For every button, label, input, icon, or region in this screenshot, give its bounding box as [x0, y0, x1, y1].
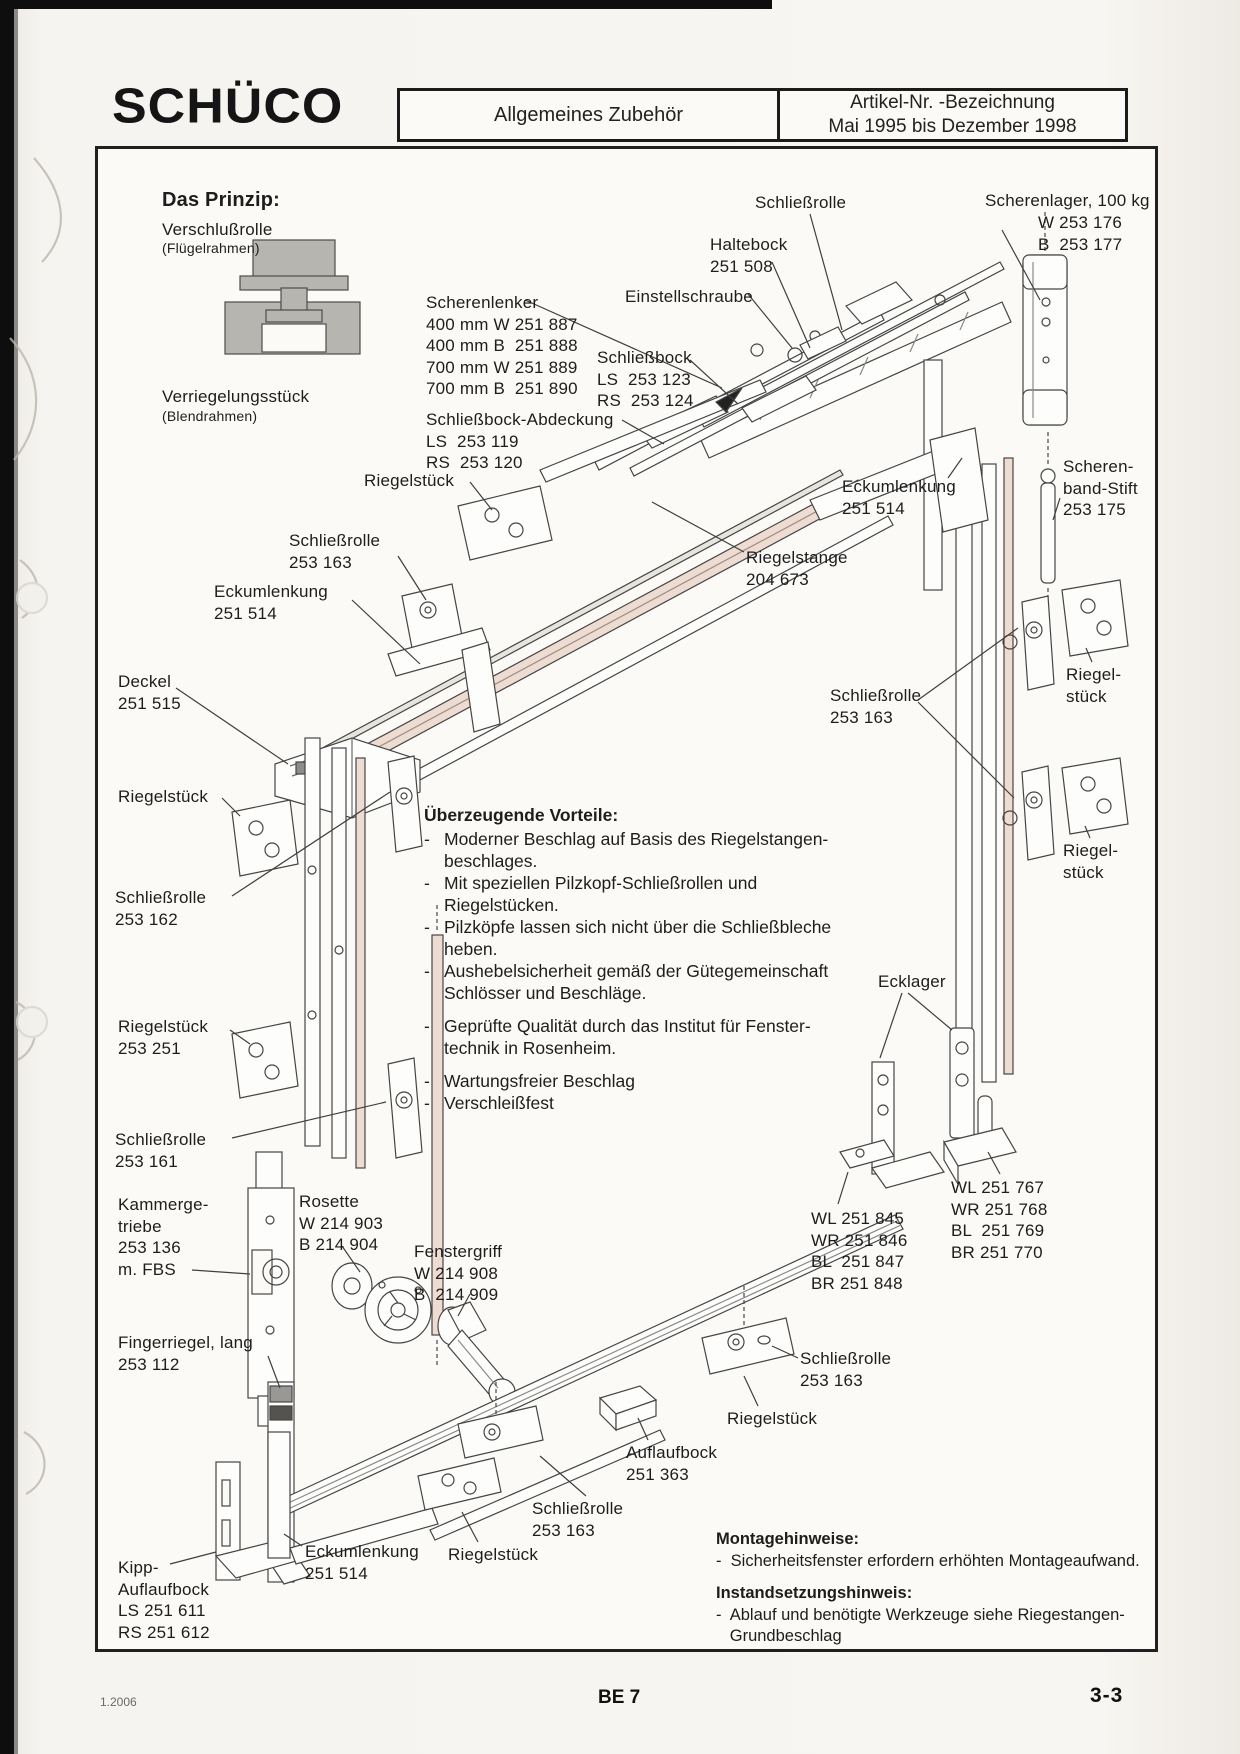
- label-ecklager-nums-right: WL 251 767 WR 251 768 BL 251 769 BR 251 …: [951, 1177, 1048, 1263]
- label-riegelstueck-b2: Riegelstück: [448, 1544, 538, 1566]
- label-schliessrolle-161: Schließrolle 253 161: [115, 1129, 206, 1172]
- advantages-lines: -Moderner Beschlag auf Basis des Riegels…: [424, 828, 904, 1114]
- label-deckel: Deckel 251 515: [118, 671, 181, 714]
- advantage-line: -Geprüfte Qualität durch das Institut fü…: [424, 1015, 904, 1037]
- label-schliessrolle-top: Schließrolle: [755, 192, 846, 214]
- label-riegelstueck-253-251: Riegelstück 253 251: [118, 1016, 208, 1059]
- label-schliessbock: Schließbock LS 253 123 RS 253 124: [597, 347, 694, 412]
- label-schliessrolle-163-left: Schließrolle 253 163: [289, 530, 380, 573]
- das-prinzip-title: Das Prinzip:: [162, 188, 280, 213]
- label-eckumlenkung-left: Eckumlenkung 251 514: [214, 581, 328, 624]
- label-schliessrolle-163-b1: Schließrolle 253 163: [800, 1348, 891, 1391]
- advantages-block: Überzeugende Vorteile: -Moderner Beschla…: [424, 804, 904, 1114]
- advantage-line: -Pilzköpfe lassen sich nicht über die Sc…: [424, 916, 904, 938]
- footer-page-code: BE 7: [598, 1687, 640, 1709]
- footer-page-number: 3-3: [1090, 1684, 1123, 1708]
- label-schliessrolle-162: Schließrolle 253 162: [115, 887, 206, 930]
- fenstergriff-drawing: [438, 1302, 515, 1405]
- advantage-line: [424, 1059, 904, 1070]
- label-schliessrolle-163-b2: Schließrolle 253 163: [532, 1498, 623, 1541]
- label-riegelstueck-right-1: Riegel- stück: [1066, 664, 1121, 707]
- label-scherenlager: Scherenlager, 100 kg: [985, 190, 1150, 212]
- advantage-line: technik in Rosenheim.: [424, 1037, 904, 1059]
- advantage-line: -Mit speziellen Pilzkopf-Schließrollen u…: [424, 872, 904, 894]
- note-line: - Ablauf und benötigte Werkzeuge siehe R…: [716, 1605, 1151, 1627]
- advantage-line: -Moderner Beschlag auf Basis des Riegels…: [424, 828, 904, 850]
- label-auflaufbock: Auflaufbock 251 363: [626, 1442, 717, 1485]
- label-riegelstueck-left-1: Riegelstück: [118, 786, 208, 808]
- label-schliessrolle-163-right: Schließrolle 253 163: [830, 685, 921, 728]
- verriegelungsstueck-sub: (Blendrahmen): [162, 408, 257, 426]
- note-title: Instandsetzungshinweis:: [716, 1583, 1151, 1605]
- label-riegelstueck-top: Riegelstück: [364, 470, 454, 492]
- advantage-line: -Aushebelsicherheit gemäß der Gütegemein…: [424, 960, 904, 982]
- label-fingerriegel: Fingerriegel, lang 253 112: [118, 1332, 253, 1375]
- label-riegelstange: Riegelstange 204 673: [746, 547, 848, 590]
- advantage-line: Riegelstücken.: [424, 894, 904, 916]
- label-kammergetriebe: Kammerge- triebe 253 136 m. FBS: [118, 1194, 209, 1280]
- label-scherenlager-nums: W 253 176 B 253 177: [1038, 212, 1122, 255]
- advantage-line: -Wartungsfreier Beschlag: [424, 1070, 904, 1092]
- note-title: Montagehinweise:: [716, 1529, 1151, 1551]
- label-riegelstueck-b1: Riegelstück: [727, 1408, 817, 1430]
- label-haltebock: Haltebock 251 508: [710, 234, 787, 277]
- advantage-line: [424, 1004, 904, 1015]
- label-eckumlenkung-bottom: Eckumlenkung 251 514: [305, 1541, 419, 1584]
- label-scherenlenker: Scherenlenker 400 mm W 251 887 400 mm B …: [426, 292, 578, 400]
- advantage-line: beschlages.: [424, 850, 904, 872]
- label-ecklager-nums-left: WL 251 845 WR 251 846 BL 251 847 BR 251 …: [811, 1208, 908, 1294]
- label-riegelstueck-right-2: Riegel- stück: [1063, 840, 1118, 883]
- scan-artifacts: [10, 158, 61, 1494]
- label-einstellschraube: Einstellschraube: [625, 286, 753, 308]
- label-rosette: Rosette W 214 903 B 214 904: [299, 1191, 383, 1256]
- advantages-title: Überzeugende Vorteile:: [424, 804, 904, 826]
- advantage-line: heben.: [424, 938, 904, 960]
- note-line: Grundbeschlag: [716, 1626, 1151, 1648]
- verriegelungsstueck-label: Verriegelungsstück: [162, 386, 309, 408]
- note-line: - Sicherheitsfenster erfordern erhöhten …: [716, 1551, 1151, 1573]
- label-schliessbock-abdeckung: Schließbock-Abdeckung LS 253 119 RS 253 …: [426, 409, 614, 474]
- catalog-page: SCHÜCO Allgemeines Zubehör Artikel-Nr. -…: [0, 0, 1240, 1754]
- verschlussrolle-sub: (Flügelrahmen): [162, 240, 260, 258]
- label-fenstergriff: Fenstergriff W 214 908 B 214 909: [414, 1241, 502, 1306]
- label-scherenband-stift: Scheren- band-Stift 253 175: [1063, 456, 1138, 521]
- label-eckumlenkung-right: Eckumlenkung 251 514: [842, 476, 956, 519]
- advantage-line: -Verschleißfest: [424, 1092, 904, 1114]
- advantage-line: Schlösser und Beschläge.: [424, 982, 904, 1004]
- verschlussrolle-label: Verschlußrolle: [162, 219, 273, 241]
- notes-block: Montagehinweise:- Sicherheitsfenster erf…: [716, 1518, 1151, 1648]
- label-kipp-auflaufbock: Kipp- Auflaufbock LS 251 611 RS 251 612: [118, 1557, 210, 1643]
- footer-edition: 1.2006: [100, 1695, 137, 1709]
